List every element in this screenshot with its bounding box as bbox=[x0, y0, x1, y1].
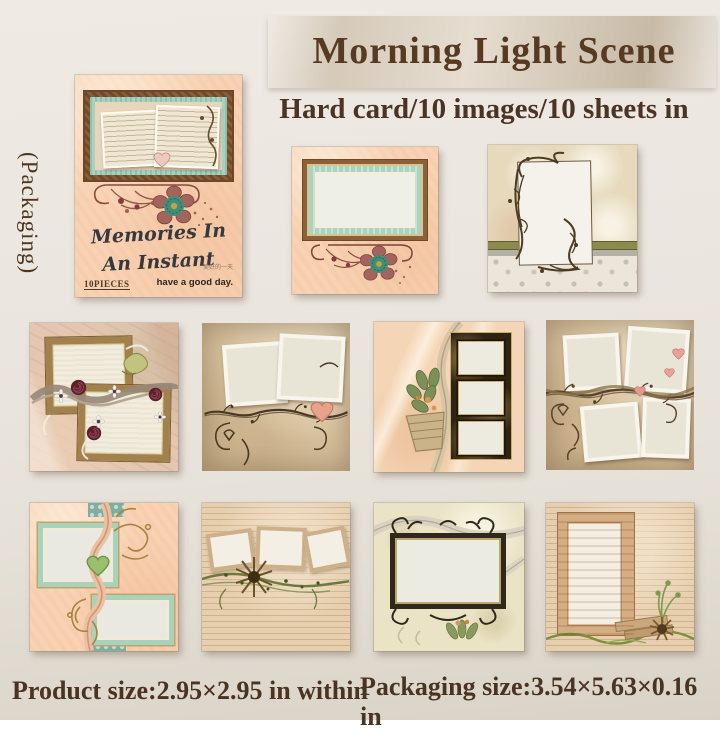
packaging-side-label: (Packaging) bbox=[16, 152, 42, 322]
branch-and-swirl-graphic bbox=[202, 323, 350, 471]
iron-scroll-corners-graphic bbox=[374, 503, 524, 651]
product-poster: Morning Light Scene Hard card/10 images/… bbox=[0, 0, 720, 720]
packaging-cream-mat bbox=[95, 102, 222, 170]
tagline-block: 美好的一天 have a good day. bbox=[157, 265, 233, 290]
tagline-english: have a good day. bbox=[157, 277, 233, 288]
packaging-bottom-row: 10PIECES 美好的一天 have a good day. bbox=[84, 265, 233, 290]
bottom-floral-icon bbox=[398, 620, 480, 645]
packaging-teal-mat bbox=[90, 97, 227, 175]
packaging-ornate-frame bbox=[83, 90, 234, 182]
sample-sheet-mint-ribbon bbox=[30, 503, 178, 651]
sample-sheet-four-polaroids bbox=[546, 320, 694, 470]
twisted-branch-graphic bbox=[546, 320, 694, 468]
vine-flower-graphic bbox=[202, 503, 350, 651]
teal-flower-icon bbox=[153, 186, 194, 224]
twig-vine-graphic bbox=[494, 149, 624, 289]
sample-sheet-mint-frame bbox=[292, 147, 438, 294]
blank-photo-window bbox=[458, 421, 504, 455]
product-size-text: Product size:2.95×2.95 in within bbox=[12, 676, 368, 706]
leaf-basket-graphic bbox=[392, 366, 462, 458]
teal-flower-icon bbox=[360, 246, 397, 280]
sample-sheet-gold-frames bbox=[30, 323, 178, 471]
sample-sheet-polaroid-heart bbox=[202, 323, 350, 471]
sample-sheet-twig-frame bbox=[488, 145, 637, 292]
mint-photo-frame bbox=[303, 160, 427, 240]
blank-photo-window bbox=[458, 341, 504, 375]
ribbon-swirl-graphic bbox=[30, 503, 178, 651]
blank-photo-window bbox=[458, 381, 504, 415]
dried-flower-ribbon-graphic bbox=[546, 503, 694, 651]
blank-photo-area bbox=[315, 172, 415, 228]
page-title: Morning Light Scene bbox=[276, 29, 712, 73]
tagline-chinese: 美好的一天 bbox=[157, 265, 233, 272]
page-subtitle: Hard card/10 images/10 sheets in bbox=[252, 93, 716, 126]
packaging-cover-card: Memories In An Instant 10PIECES 美好的一天 ha… bbox=[75, 75, 242, 297]
sample-sheet-door-frame bbox=[546, 503, 694, 651]
sample-sheet-three-frames bbox=[202, 503, 350, 651]
heart-icon bbox=[153, 152, 171, 168]
corner-flourish-icon bbox=[194, 104, 220, 168]
floral-ornament-graphic bbox=[292, 241, 438, 289]
ribbon-and-flowers-graphic bbox=[30, 323, 178, 471]
sample-sheet-iron-frame bbox=[374, 503, 524, 651]
sample-sheet-filmstrip bbox=[374, 322, 524, 472]
pieces-count-label: 10PIECES bbox=[84, 279, 130, 290]
packaging-size-text: Packaging size:3.54×5.63×0.16 in bbox=[360, 672, 720, 732]
